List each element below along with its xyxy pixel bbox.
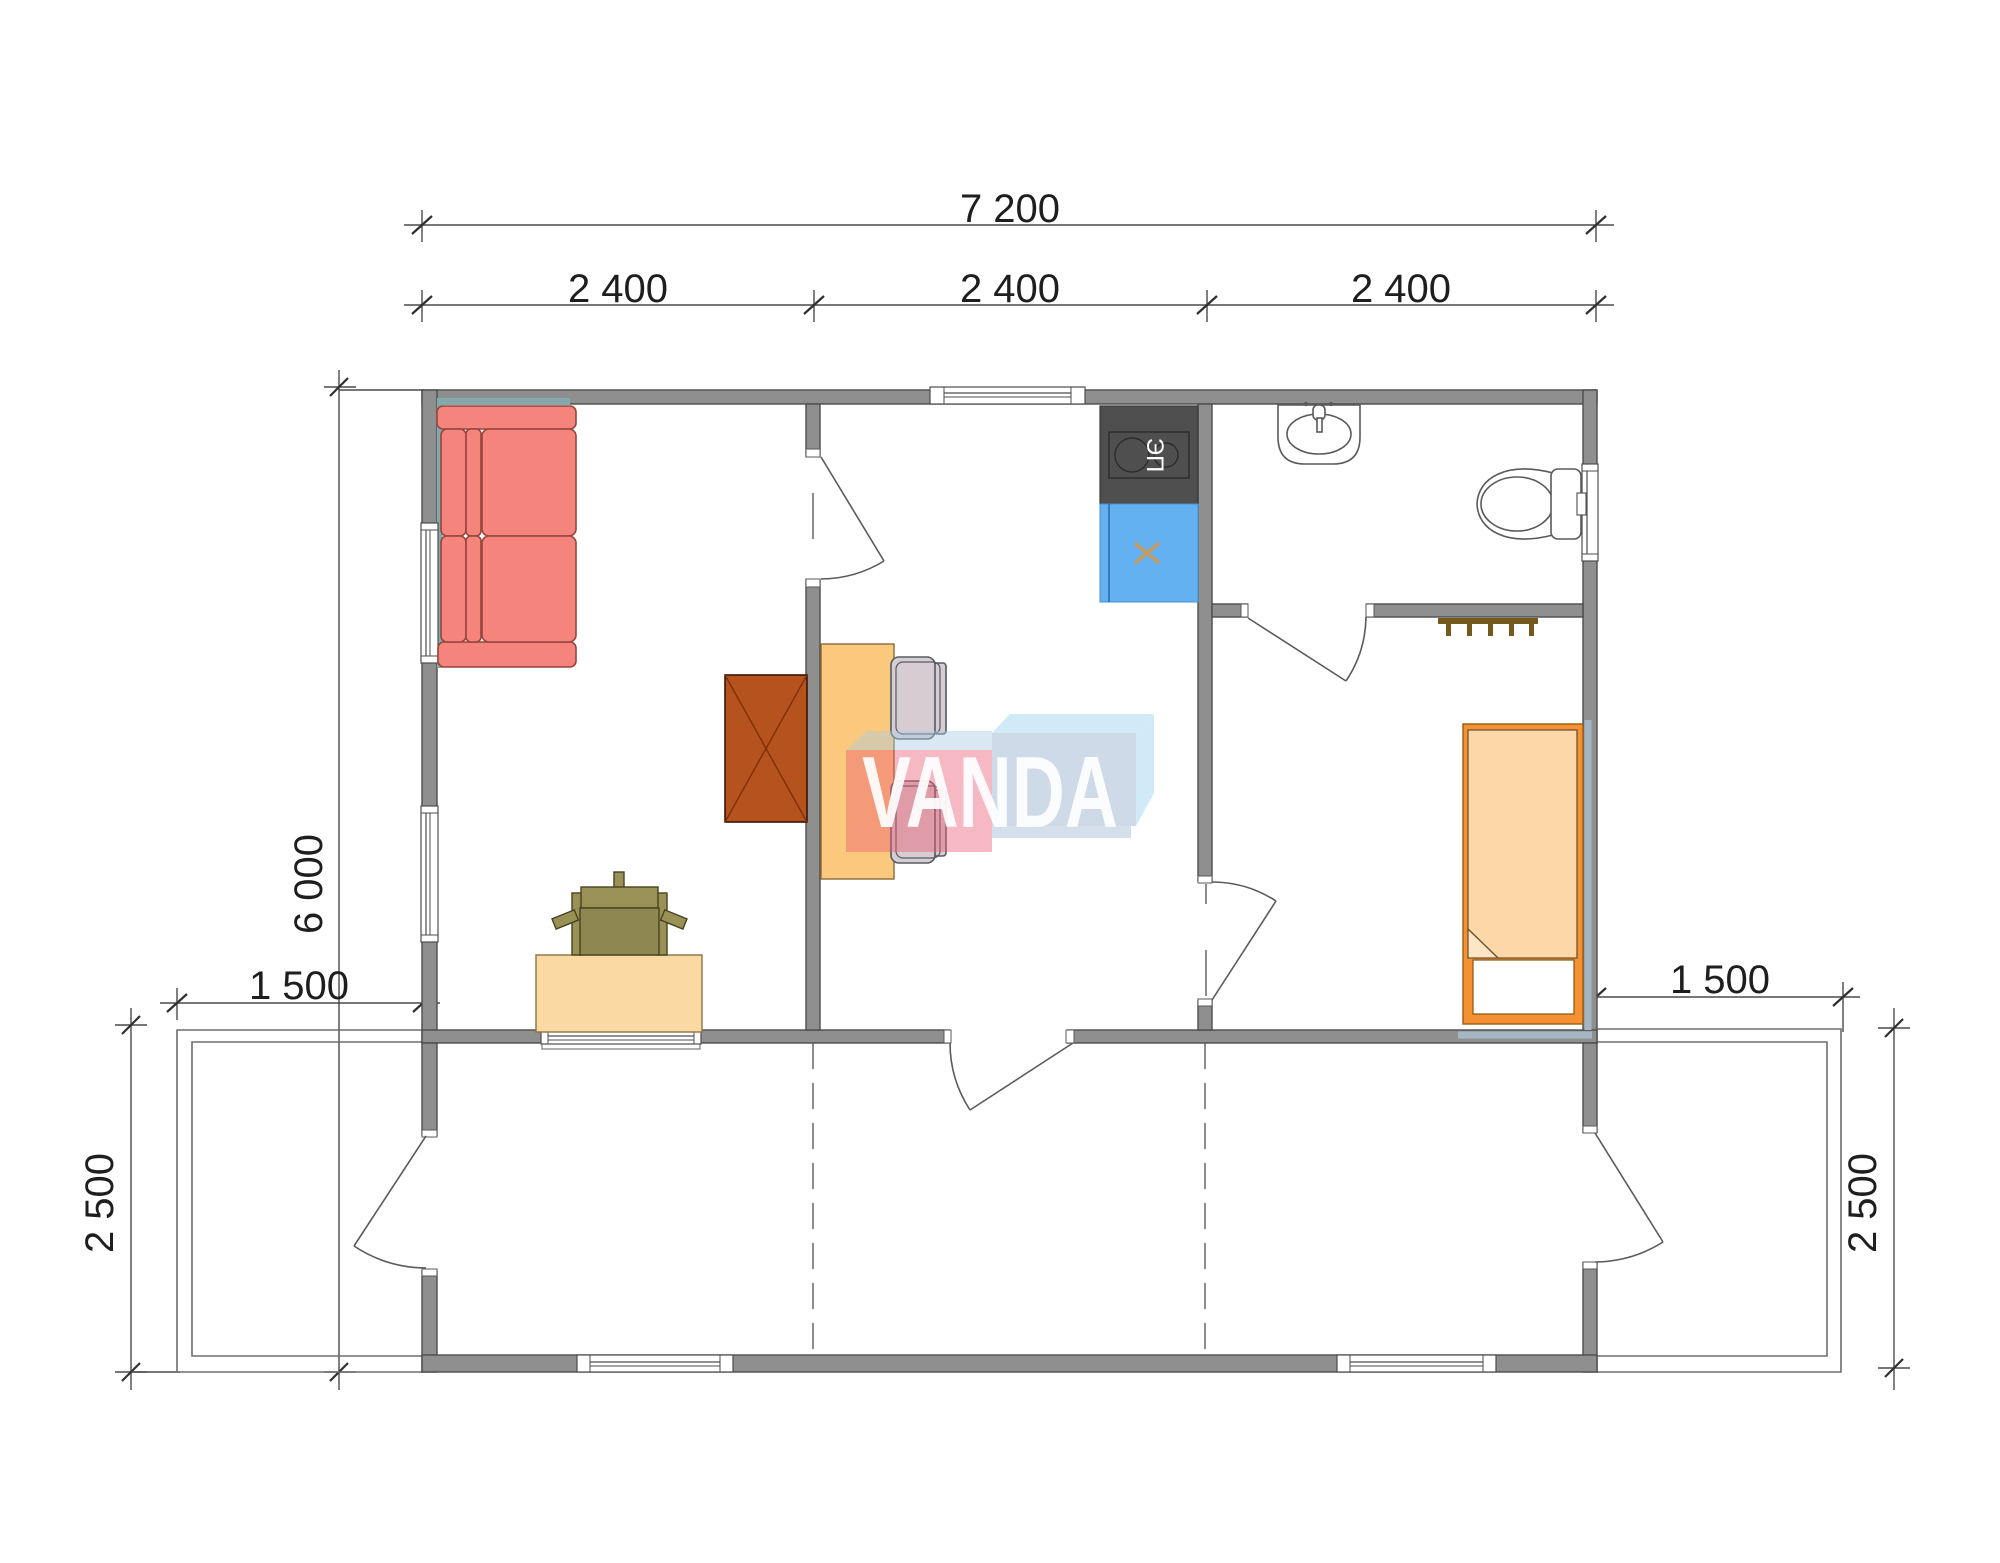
svg-text:2 400: 2 400 [1351, 267, 1451, 311]
svg-text:VANDA: VANDA [862, 737, 1118, 849]
svg-text:2 500: 2 500 [78, 1153, 122, 1253]
svg-text:1 500: 1 500 [1670, 958, 1770, 1002]
svg-text:ЭП: ЭП [1141, 438, 1168, 473]
svg-text:1 500: 1 500 [249, 964, 349, 1008]
svg-text:2 400: 2 400 [960, 267, 1060, 311]
svg-text:6 000: 6 000 [287, 834, 331, 934]
svg-text:2 500: 2 500 [1841, 1153, 1885, 1253]
svg-text:2 400: 2 400 [568, 267, 668, 311]
svg-text:7 200: 7 200 [960, 187, 1060, 231]
